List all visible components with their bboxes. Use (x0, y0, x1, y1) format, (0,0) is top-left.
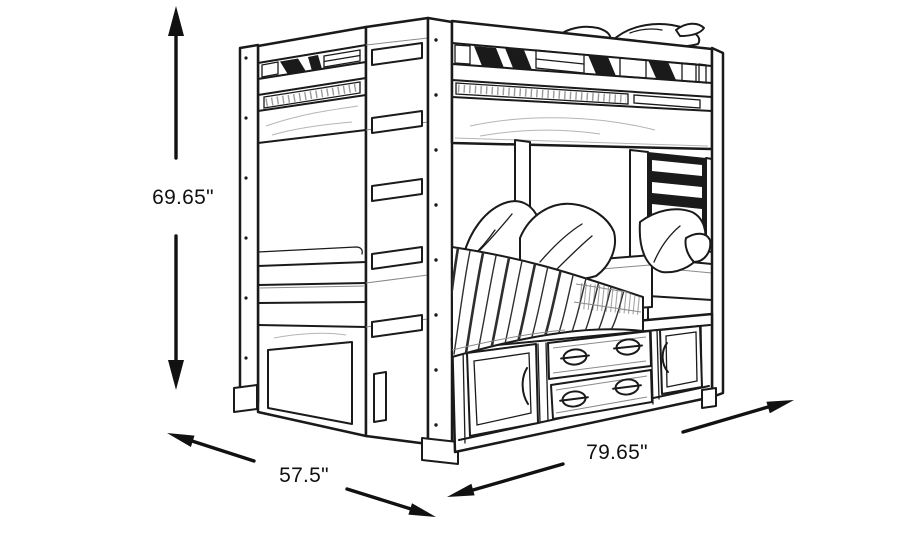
depth-dimension-label: 57.5" (279, 464, 329, 488)
bunk-bed-line-drawing (0, 0, 900, 550)
height-dimension-label: 69.65" (152, 186, 214, 210)
length-dimension-label: 79.65" (586, 441, 648, 465)
bed-left-end-panel (258, 27, 366, 436)
bed-drawing (234, 18, 723, 464)
bed-ladder (366, 18, 428, 444)
bed-front-right-post (712, 48, 723, 397)
storage-right-door (660, 326, 702, 394)
storage-left-door (467, 344, 538, 436)
bed-back-post (515, 140, 530, 208)
bed-back-left-post (234, 45, 258, 412)
diagram-canvas: 69.65" 57.5" 79.65" (0, 0, 900, 550)
